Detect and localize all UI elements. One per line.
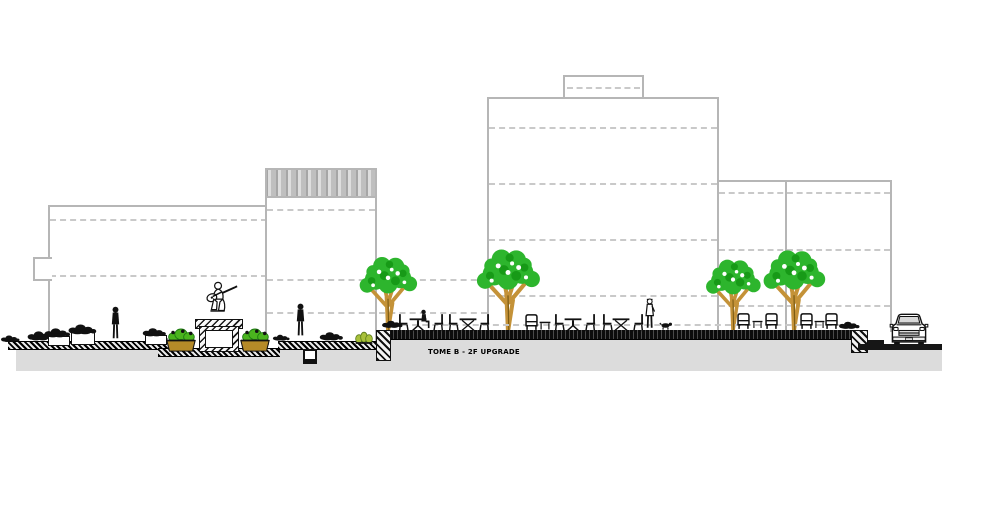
- coffee-table-icon: [539, 316, 551, 331]
- floor-dash-line: [719, 192, 890, 194]
- lounge-chair-icon: [764, 310, 779, 330]
- cafe-table-icon: [459, 313, 477, 331]
- parapet-rib-band: [267, 170, 375, 198]
- building-left-notch: [33, 257, 52, 281]
- seated-patron-icon: [419, 309, 431, 331]
- planter-box-icon: [239, 329, 271, 352]
- cafe-chair-icon: [584, 312, 597, 332]
- floor-dash-line: [489, 183, 717, 185]
- inground-light-fixture: [303, 349, 317, 364]
- floor-dash-line: [50, 219, 267, 221]
- subgrade-fill: [16, 348, 162, 371]
- floor-dash-line: [50, 275, 267, 277]
- plaza-edge-left: [376, 330, 391, 361]
- floor-dash-line: [489, 127, 717, 129]
- hedge-shrub-icon: [318, 331, 344, 341]
- cafe-table-icon: [612, 313, 630, 331]
- statue-pedestal-panel: [205, 330, 233, 348]
- cafe-chair-icon: [478, 312, 491, 332]
- curb-fixture: [868, 340, 884, 348]
- walking-person-icon: [643, 297, 658, 331]
- lounge-chair-icon: [524, 311, 539, 331]
- coffee-table-icon: [752, 315, 763, 330]
- cafe-table-icon: [564, 313, 582, 331]
- subgrade-fill: [158, 355, 280, 371]
- floor-dash-line: [489, 239, 717, 241]
- floor-dash-line: [567, 87, 640, 89]
- lounge-chair-icon: [799, 310, 814, 330]
- hedge-shrub-icon: [141, 327, 167, 337]
- subgrade-fill: [278, 348, 378, 371]
- dog-icon: [659, 321, 672, 330]
- lounge-chair-icon: [736, 310, 751, 330]
- planter-box-icon: [165, 329, 197, 352]
- hedge-shrub-icon: [838, 320, 860, 330]
- pedestrian-figure-icon: [109, 306, 122, 341]
- hedge-shrub-icon: [0, 334, 20, 343]
- subgrade-fill: [856, 350, 942, 371]
- guitarist-statue-icon: [197, 281, 241, 321]
- floor-dash-line: [267, 209, 375, 211]
- pedestrian-figure-icon: [294, 302, 307, 339]
- lounge-chair-icon: [824, 310, 839, 330]
- cafe-chair-icon: [432, 312, 445, 332]
- section-label: TOME B - 2F UPGRADE: [428, 348, 520, 356]
- car-icon: [888, 308, 930, 346]
- hedge-shrub-icon: [272, 333, 290, 342]
- elevation-drawing: TOME B - 2F UPGRADE: [0, 0, 998, 516]
- grass-plant-icon: [354, 332, 374, 344]
- hedge-shrub-icon: [66, 323, 98, 335]
